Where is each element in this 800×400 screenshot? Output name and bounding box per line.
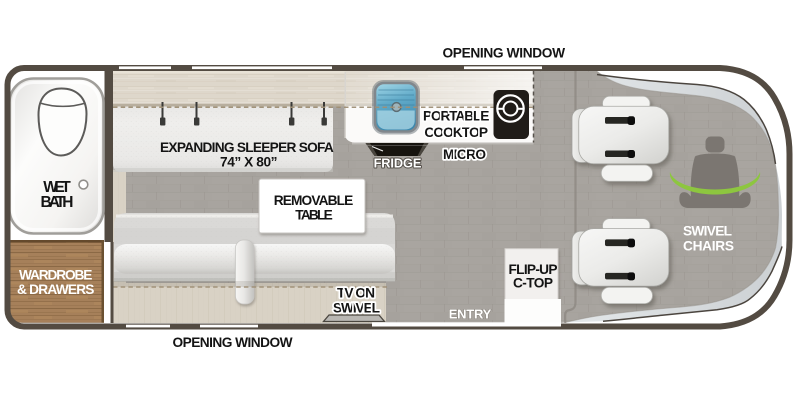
svg-text:TABLE: TABLE: [295, 208, 333, 223]
svg-text:CHAIRS: CHAIRS: [683, 239, 734, 254]
svg-text:PORTABLE: PORTABLE: [423, 109, 489, 124]
svg-text:COOKTOP: COOKTOP: [424, 125, 488, 140]
svg-text:EXPANDING SLEEPER SOFA: EXPANDING SLEEPER SOFA: [160, 140, 334, 155]
svg-text:BATH: BATH: [41, 194, 74, 211]
svg-text:OPENING WINDOW: OPENING WINDOW: [443, 46, 566, 61]
svg-text:C-TOP: C-TOP: [513, 276, 553, 291]
svg-text:REMOVABLE: REMOVABLE: [274, 193, 354, 208]
svg-text:SWIVEL: SWIVEL: [333, 301, 380, 316]
svg-text:SWIVEL: SWIVEL: [683, 224, 732, 239]
svg-text:74” X 80”: 74” X 80”: [220, 155, 278, 170]
svg-text:& DRAWERS: & DRAWERS: [17, 282, 94, 297]
svg-text:ENTRY: ENTRY: [449, 307, 492, 322]
svg-text:WARDROBE: WARDROBE: [19, 268, 92, 283]
svg-text:TV ON: TV ON: [337, 286, 375, 301]
svg-text:MICRO: MICRO: [443, 147, 486, 162]
svg-text:FRIDGE: FRIDGE: [374, 156, 422, 171]
svg-text:OPENING WINDOW: OPENING WINDOW: [173, 335, 293, 350]
